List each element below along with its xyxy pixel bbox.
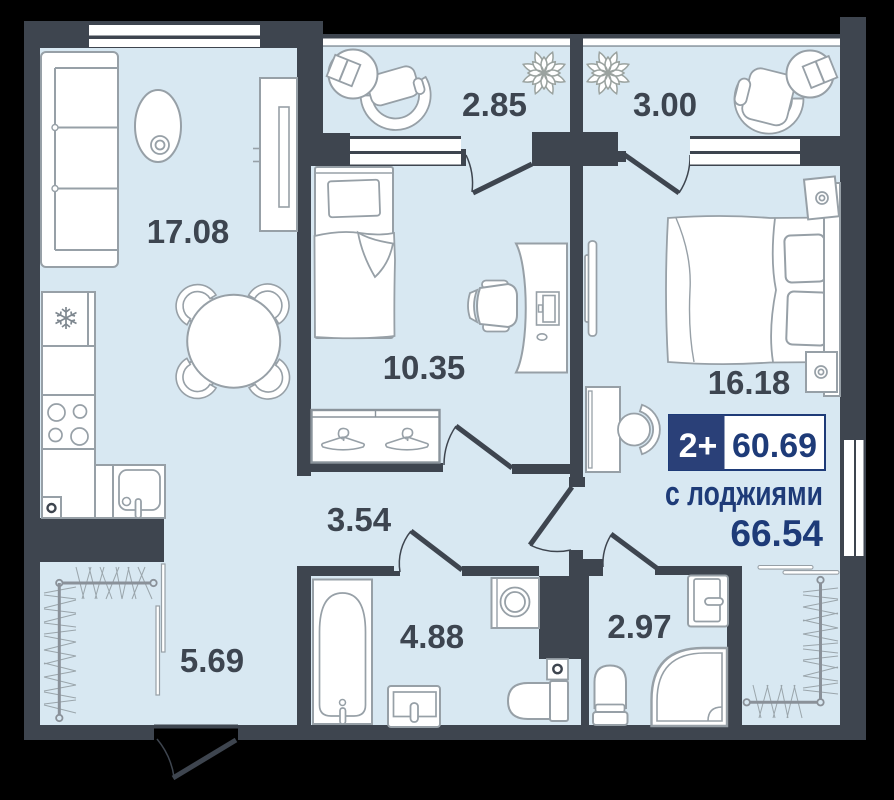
svg-text:3.54: 3.54	[327, 501, 392, 538]
svg-text:2.97: 2.97	[607, 608, 671, 645]
svg-text:5.69: 5.69	[180, 642, 244, 679]
svg-text:4.88: 4.88	[400, 618, 464, 655]
svg-text:10.35: 10.35	[383, 349, 466, 386]
svg-text:3.00: 3.00	[633, 86, 697, 123]
svg-text:17.08: 17.08	[147, 213, 230, 250]
svg-text:60.69: 60.69	[732, 427, 817, 465]
svg-text:16.18: 16.18	[708, 364, 791, 401]
svg-text:2.85: 2.85	[462, 86, 527, 123]
svg-text:66.54: 66.54	[730, 513, 823, 554]
svg-text:2+: 2+	[679, 427, 718, 465]
svg-text:с лоджиями: с лоджиями	[665, 475, 823, 513]
